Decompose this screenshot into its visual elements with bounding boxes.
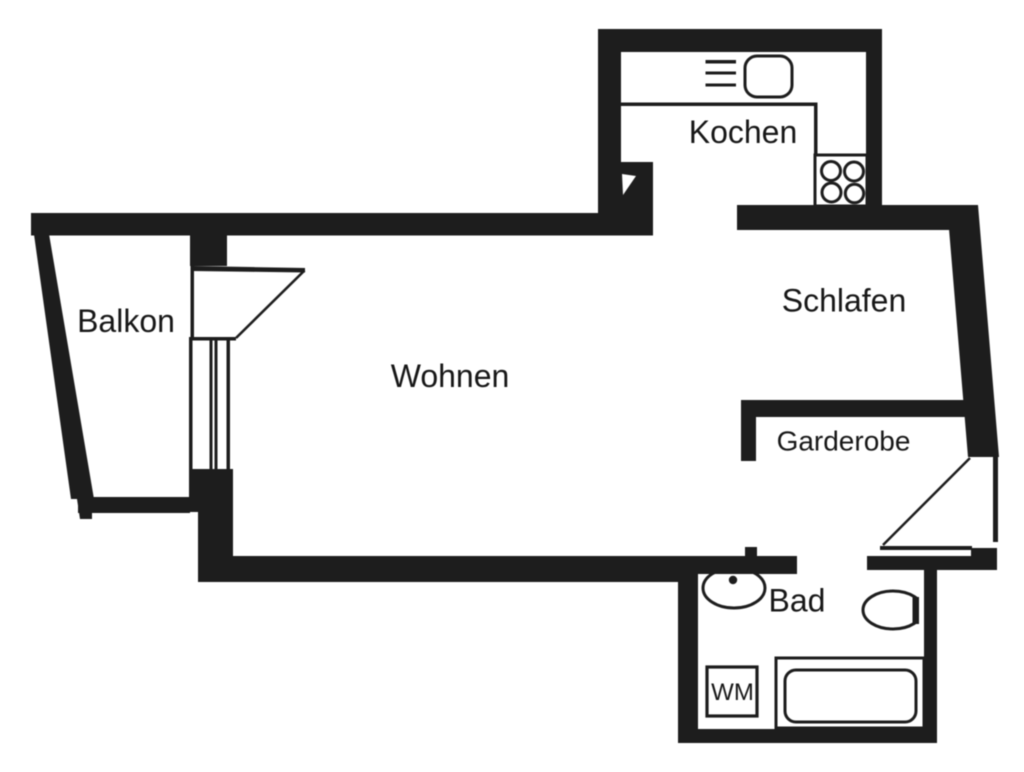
svg-text:Schlafen: Schlafen <box>782 283 907 319</box>
svg-text:Garderobe: Garderobe <box>777 426 911 457</box>
svg-text:Balkon: Balkon <box>77 303 175 339</box>
svg-text:Wohnen: Wohnen <box>391 358 510 394</box>
svg-text:Kochen: Kochen <box>689 114 798 150</box>
svg-text:Bad: Bad <box>769 583 826 619</box>
svg-text:WM: WM <box>711 679 754 706</box>
